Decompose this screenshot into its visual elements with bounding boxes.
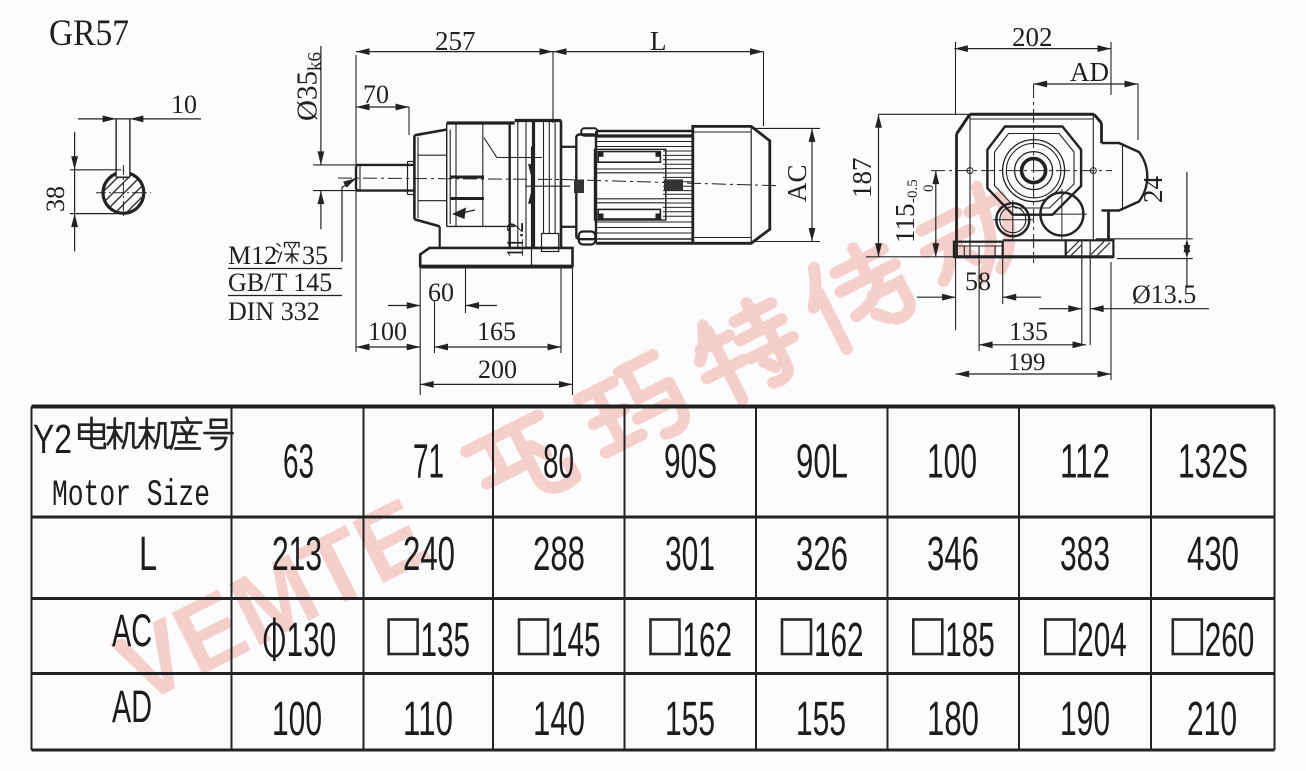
svg-text:AC: AC (112, 605, 152, 656)
svg-text:AD: AD (112, 681, 152, 732)
svg-text:326: 326 (796, 528, 848, 581)
svg-text:90S: 90S (664, 436, 717, 489)
svg-text:301: 301 (665, 528, 715, 581)
svg-text:135: 135 (421, 614, 471, 667)
svg-text:260: 260 (1205, 614, 1255, 667)
svg-text:135: 135 (1009, 317, 1048, 346)
svg-text:AD: AD (1070, 57, 1109, 87)
svg-text:70: 70 (363, 80, 389, 109)
svg-text:24: 24 (1138, 176, 1168, 204)
svg-text:63: 63 (283, 436, 314, 489)
svg-text:58: 58 (965, 267, 991, 296)
svg-text:AC: AC (782, 164, 812, 202)
svg-text:71: 71 (413, 436, 444, 489)
svg-text:DIN 332: DIN 332 (228, 297, 320, 326)
svg-text:202: 202 (1012, 22, 1053, 52)
svg-text:145: 145 (551, 614, 601, 667)
svg-text:200: 200 (478, 355, 517, 384)
svg-text:Motor Size: Motor Size (52, 475, 210, 517)
svg-text:162: 162 (814, 614, 864, 667)
svg-text:L: L (139, 528, 157, 581)
svg-text:155: 155 (665, 693, 715, 746)
svg-text:185: 185 (945, 614, 995, 667)
svg-text:187: 187 (847, 158, 877, 199)
svg-text:346: 346 (927, 528, 979, 581)
svg-text:Y2: Y2 (33, 416, 72, 462)
svg-text:140: 140 (533, 693, 585, 746)
svg-text:-0.5: -0.5 (905, 179, 921, 203)
svg-text:10: 10 (171, 90, 197, 119)
svg-text:132S: 132S (1178, 436, 1248, 489)
svg-text:430: 430 (1187, 528, 1239, 581)
svg-text:165: 165 (477, 317, 516, 346)
svg-text:383: 383 (1060, 528, 1110, 581)
svg-text:110: 110 (403, 693, 453, 746)
svg-text:L: L (650, 26, 667, 56)
svg-text:GR57: GR57 (49, 13, 129, 54)
svg-text:115: 115 (890, 204, 920, 244)
svg-text:240: 240 (403, 528, 455, 581)
svg-text:257: 257 (435, 26, 476, 56)
svg-text:80: 80 (543, 436, 574, 489)
svg-text:GB/T 145: GB/T 145 (228, 268, 332, 297)
svg-text:180: 180 (927, 693, 979, 746)
svg-text:155: 155 (796, 693, 846, 746)
svg-text:Ø13.5: Ø13.5 (1132, 280, 1196, 309)
svg-text:213: 213 (272, 528, 322, 581)
svg-text:100: 100 (272, 693, 322, 746)
svg-text:90L: 90L (796, 436, 848, 489)
svg-text:162: 162 (683, 614, 733, 667)
svg-text:38: 38 (41, 186, 70, 212)
svg-text:35: 35 (302, 241, 328, 270)
svg-text:210: 210 (1187, 693, 1237, 746)
svg-text:100: 100 (368, 317, 407, 346)
svg-text:0: 0 (921, 185, 937, 193)
svg-text:112: 112 (1060, 436, 1110, 489)
svg-text:288: 288 (533, 528, 585, 581)
svg-text:M12: M12 (228, 241, 277, 270)
svg-text:190: 190 (1060, 693, 1110, 746)
svg-text:60: 60 (428, 278, 454, 307)
svg-text:204: 204 (1077, 614, 1127, 667)
svg-text:130: 130 (287, 614, 337, 667)
svg-text:199: 199 (1008, 349, 1046, 376)
svg-text:100: 100 (927, 436, 977, 489)
svg-text:11.2: 11.2 (503, 222, 529, 258)
